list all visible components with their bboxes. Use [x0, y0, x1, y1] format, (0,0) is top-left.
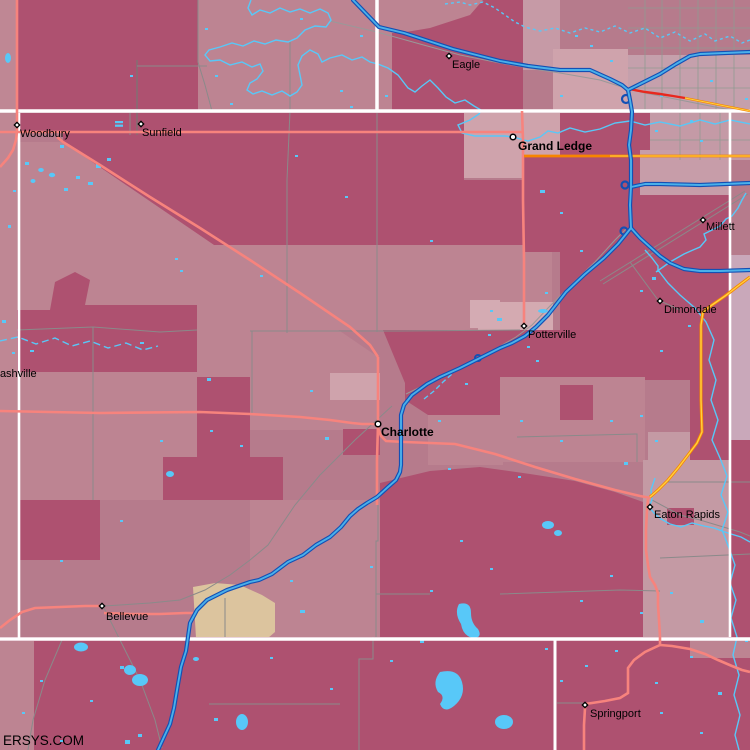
svg-text:Eagle: Eagle	[452, 59, 480, 71]
svg-text:Eaton Rapids: Eaton Rapids	[654, 509, 721, 521]
svg-text:ERSYS.COM: ERSYS.COM	[3, 733, 84, 748]
svg-text:Bellevue: Bellevue	[106, 611, 148, 623]
svg-text:Potterville: Potterville	[528, 329, 576, 341]
svg-text:Millett: Millett	[706, 221, 735, 233]
svg-text:Springport: Springport	[590, 708, 641, 720]
svg-text:Sunfield: Sunfield	[142, 127, 182, 139]
svg-text:Woodbury: Woodbury	[20, 128, 70, 140]
svg-text:Grand Ledge: Grand Ledge	[518, 139, 592, 153]
svg-text:Dimondale: Dimondale	[664, 304, 717, 316]
svg-text:Nashville: Nashville	[0, 368, 37, 380]
svg-text:Charlotte: Charlotte	[381, 425, 434, 439]
